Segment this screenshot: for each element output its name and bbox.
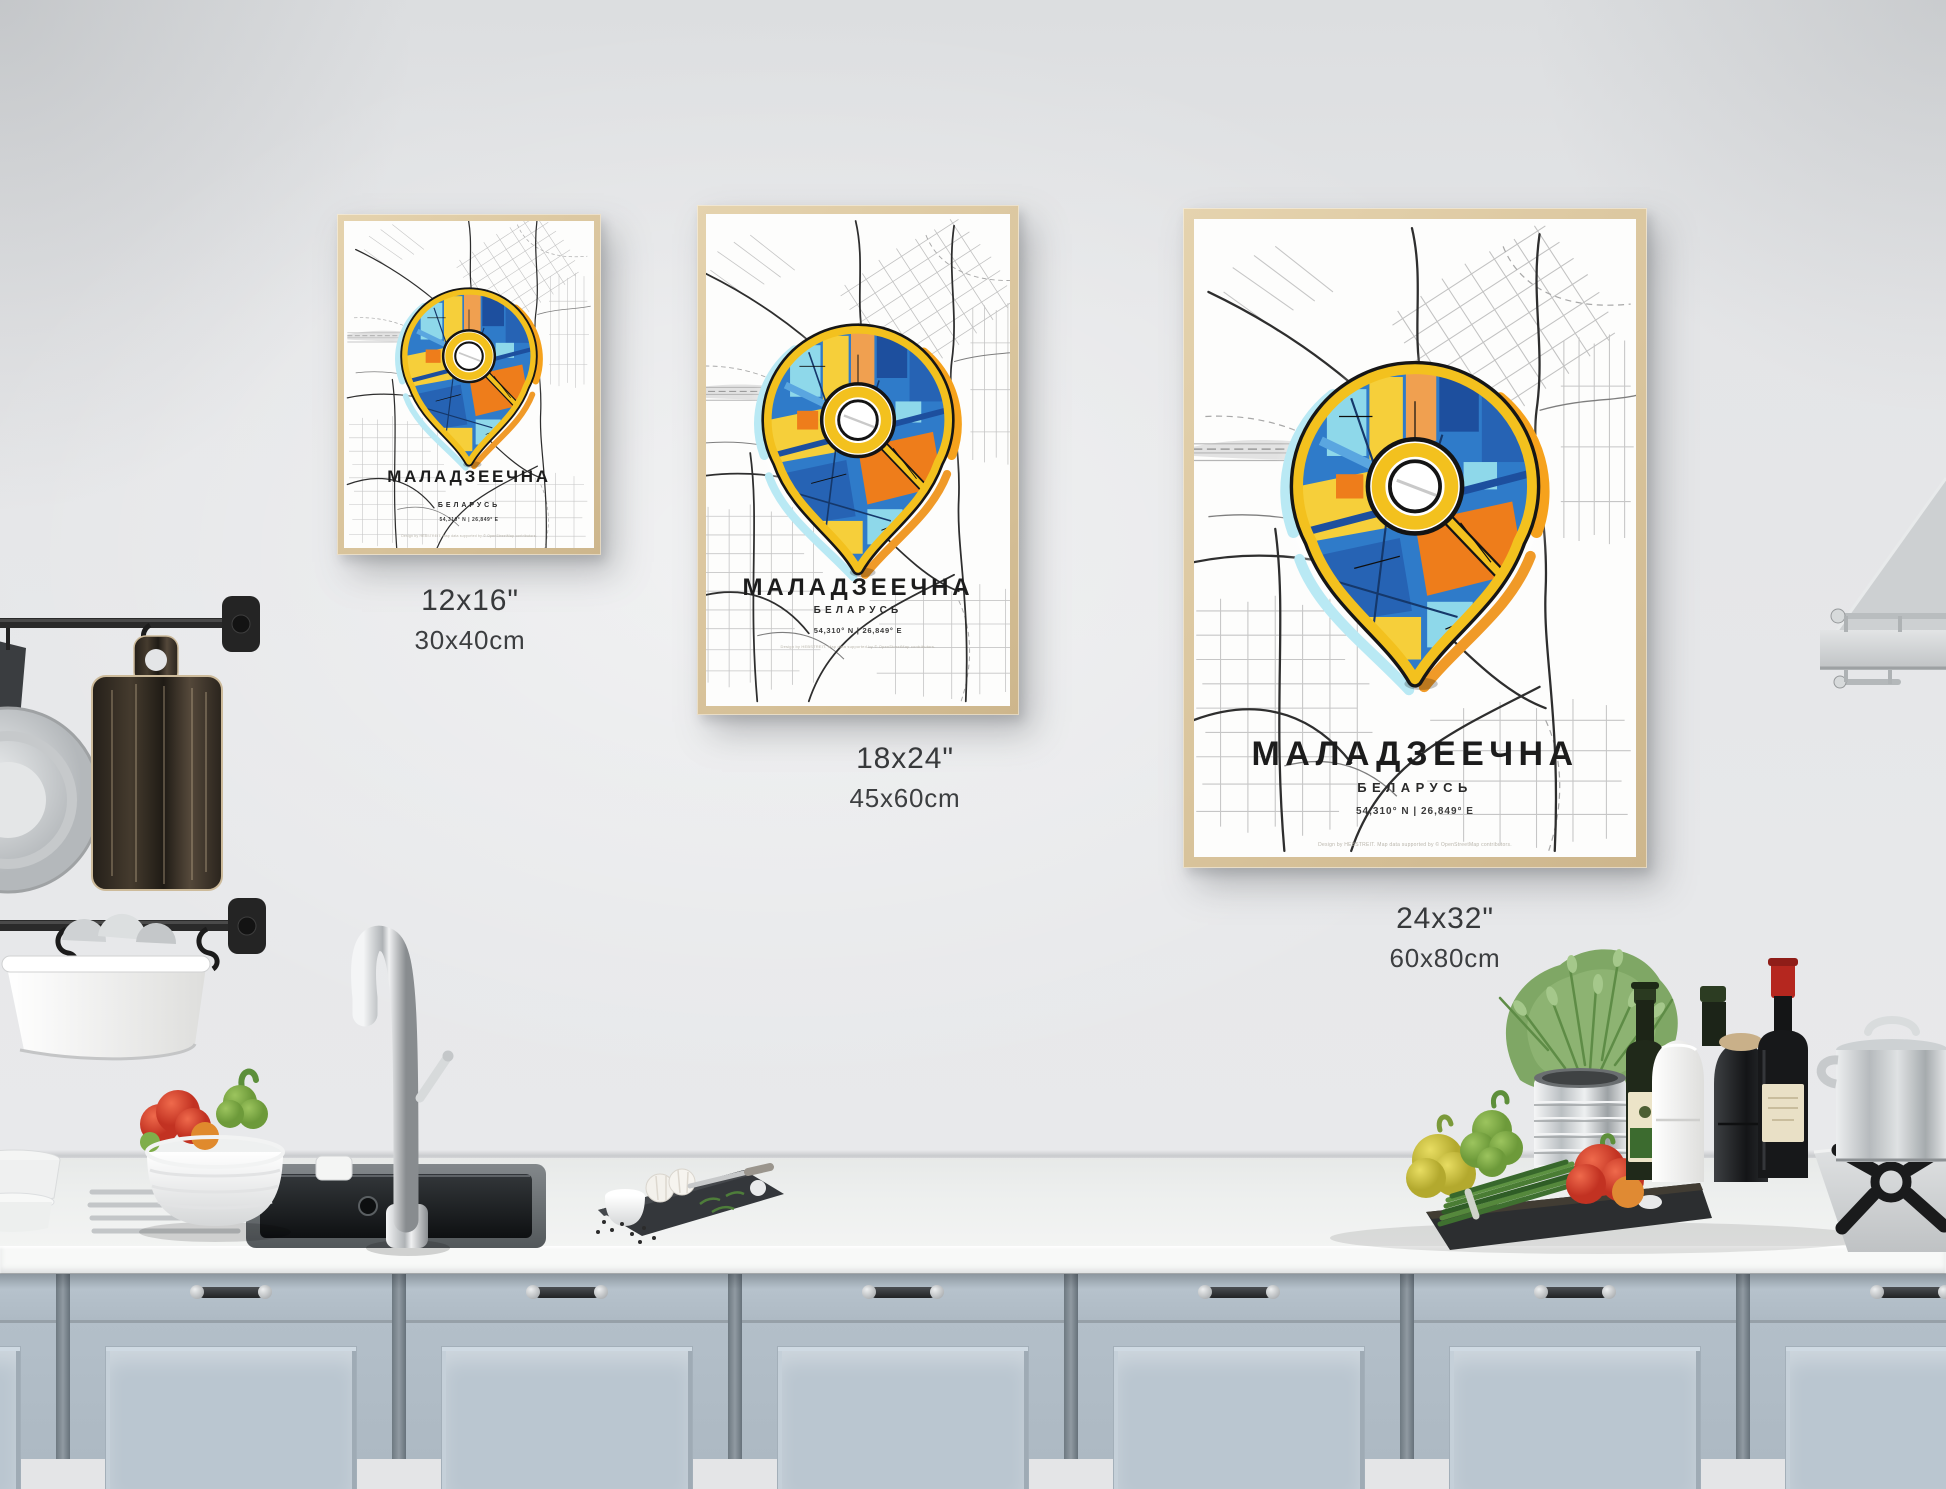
size-inches: 24x32" bbox=[1285, 902, 1605, 936]
poster-title: МАЛАДЗЕЕЧНА bbox=[706, 576, 1010, 600]
countertop bbox=[0, 1158, 1946, 1248]
cabinet-stile bbox=[56, 1274, 70, 1459]
poster-subtitle: БЕЛАРУСЬ bbox=[1194, 781, 1636, 794]
poster-paper: МАЛАДЗЕЕЧНА БЕЛАРУСЬ 54,310° N | 26,849°… bbox=[344, 221, 594, 548]
poster-subtitle: БЕЛАРУСЬ bbox=[706, 606, 1010, 616]
size-label-medium: 18x24" 45x60cm bbox=[745, 742, 1065, 814]
cabinet-door bbox=[1078, 1323, 1400, 1459]
cabinet-door bbox=[742, 1323, 1064, 1459]
cabinet-door bbox=[70, 1323, 392, 1459]
size-metric: 60x80cm bbox=[1285, 943, 1605, 974]
poster-coordinates: 54,310° N | 26,849° E bbox=[706, 627, 1010, 635]
door-panel bbox=[778, 1347, 1028, 1489]
cabinet-module bbox=[1750, 1274, 1946, 1459]
lower-cabinets bbox=[0, 1274, 1946, 1459]
cabinet-module bbox=[0, 1274, 56, 1459]
cabinet-door bbox=[0, 1323, 56, 1459]
cabinet-module bbox=[742, 1274, 1064, 1459]
cabinet-door bbox=[406, 1323, 728, 1459]
size-label-small: 12x16" 30x40cm bbox=[340, 584, 600, 656]
poster-paper: МАЛАДЗЕЕЧНА БЕЛАРУСЬ 54,310° N | 26,849°… bbox=[706, 214, 1010, 706]
cabinet-door bbox=[1750, 1323, 1946, 1459]
counter-shadow bbox=[0, 1273, 1946, 1289]
size-label-large: 24x32" 60x80cm bbox=[1285, 902, 1605, 974]
size-inches: 12x16" bbox=[340, 584, 600, 618]
poster-subtitle: БЕЛАРУСЬ bbox=[344, 502, 594, 509]
poster-large: МАЛАДЗЕЕЧНА БЕЛАРУСЬ 54,310° N | 26,849°… bbox=[1183, 208, 1647, 868]
poster-medium: МАЛАДЗЕЕЧНА БЕЛАРУСЬ 54,310° N | 26,849°… bbox=[697, 205, 1019, 715]
cabinet-stile bbox=[392, 1274, 406, 1459]
door-panel bbox=[1450, 1347, 1700, 1489]
poster-coordinates: 54,310° N | 26,849° E bbox=[1194, 807, 1636, 817]
door-panel bbox=[0, 1347, 20, 1489]
cabinet-door bbox=[1414, 1323, 1736, 1459]
cabinet-stile bbox=[1736, 1274, 1750, 1459]
cabinet-module bbox=[1414, 1274, 1736, 1459]
cabinet-module bbox=[70, 1274, 392, 1459]
door-panel bbox=[1114, 1347, 1364, 1489]
cabinet-stile bbox=[1400, 1274, 1414, 1459]
poster-credit: Design by HEBSTREIT. Map data supported … bbox=[1194, 843, 1636, 848]
cabinet-stile bbox=[1064, 1274, 1078, 1459]
size-metric: 30x40cm bbox=[340, 625, 600, 656]
poster-title: МАЛАДЗЕЕЧНА bbox=[344, 468, 594, 485]
poster-paper: МАЛАДЗЕЕЧНА БЕЛАРУСЬ 54,310° N | 26,849°… bbox=[1194, 219, 1636, 857]
cabinet-module bbox=[1078, 1274, 1400, 1459]
poster-small: МАЛАДЗЕЕЧНА БЕЛАРУСЬ 54,310° N | 26,849°… bbox=[337, 214, 601, 555]
city-map bbox=[344, 221, 594, 548]
size-metric: 45x60cm bbox=[745, 783, 1065, 814]
poster-coordinates: 54,310° N | 26,849° E bbox=[344, 518, 594, 523]
poster-title: МАЛАДЗЕЕЧНА bbox=[1194, 737, 1636, 771]
poster-credit: Design by HEBSTREIT. Map data supported … bbox=[344, 535, 594, 539]
door-panel bbox=[442, 1347, 692, 1489]
countertop-front-edge bbox=[0, 1246, 1946, 1274]
door-panel bbox=[1786, 1347, 1946, 1489]
cabinet-stile bbox=[728, 1274, 742, 1459]
cabinet-module bbox=[406, 1274, 728, 1459]
size-inches: 18x24" bbox=[745, 742, 1065, 776]
poster-credit: Design by HEBSTREIT. Map data supported … bbox=[706, 645, 1010, 649]
door-panel bbox=[106, 1347, 356, 1489]
